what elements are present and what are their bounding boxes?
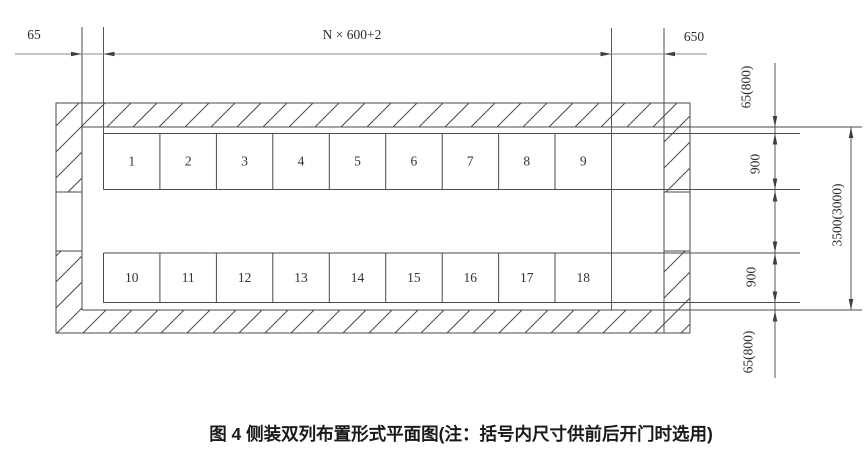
cell-number: 17 [520,270,534,285]
cell-number: 13 [294,270,308,285]
dim-label-row-width: N × 600+2 [323,27,382,42]
top-wall-hatch [56,103,690,127]
figure-canvas: 65 N × 600+2 650 65(800) 900 900 65(800)… [0,0,864,473]
bottom-row-dividers [104,253,556,303]
bottom-row-cell-numbers: 10 11 12 13 14 15 16 17 18 [125,270,590,285]
cell-number: 1 [128,154,135,169]
cell-number: 7 [467,154,474,169]
arrow-up-icon [849,127,854,138]
arrow-down-icon [849,299,854,310]
cell-number: 8 [523,154,530,169]
cell-number: 15 [407,270,421,285]
cell-number: 18 [576,270,590,285]
top-dimension-group: 65 N × 600+2 650 [15,27,707,56]
cell-number: 6 [411,154,418,169]
dim-label-right-aisle: 650 [684,29,705,44]
right-wall-lower-hatch [664,251,690,310]
cell-number: 5 [354,154,361,169]
right-wall-upper-hatch [664,127,690,192]
arrow-down-icon [773,179,778,190]
cell-number: 11 [182,270,195,285]
right-dimension-group: 65(800) 900 900 65(800) [739,63,778,378]
left-wall-upper-hatch [56,127,82,192]
cell-number: 3 [241,154,248,169]
cell-number: 10 [125,270,139,285]
arrow-down-icon [773,292,778,303]
top-row-dividers [104,134,556,190]
dim-label-left-wall-gap: 65 [27,27,41,42]
dim-label-top-wall-gap: 65(800) [739,66,754,109]
cell-number: 14 [351,270,365,285]
overall-dimension-group: 3500(3000) [830,127,854,310]
wall-outer-outline [56,103,690,333]
arrow-left-icon [104,52,115,57]
floor-plan-diagram: 65 N × 600+2 650 65(800) 900 900 65(800)… [0,0,864,473]
top-row-cell-numbers: 1 2 3 4 5 6 7 8 9 [128,154,587,169]
arrow-up-icon [773,254,778,265]
cell-number: 16 [464,270,478,285]
arrow-up-icon [773,134,778,145]
arrow-down-icon [773,116,778,127]
cell-number: 2 [185,154,192,169]
cell-number: 9 [580,154,587,169]
dim-label-bottom-row-depth: 900 [744,267,759,288]
cell-number: 4 [298,154,305,169]
arrow-right-icon [71,52,82,57]
figure-caption: 图 4 侧装双列布置形式平面图(注：括号内尺寸供前后开门时选用) [209,424,713,444]
dim-label-top-row-depth: 900 [748,154,763,175]
arrow-left-icon [664,52,675,57]
cabinet-rows [104,134,801,303]
cell-number: 12 [238,270,252,285]
arrow-up-icon [773,191,778,202]
arrow-down-icon [773,242,778,253]
arrow-right-icon [601,52,612,57]
extension-lines [104,27,612,310]
arrow-up-icon [773,311,778,322]
left-wall-lower-hatch [56,251,82,310]
dim-label-overall-width: 3500(3000) [830,184,845,247]
dim-label-bottom-wall-gap: 65(800) [741,331,756,374]
bottom-wall-hatch [56,310,690,333]
